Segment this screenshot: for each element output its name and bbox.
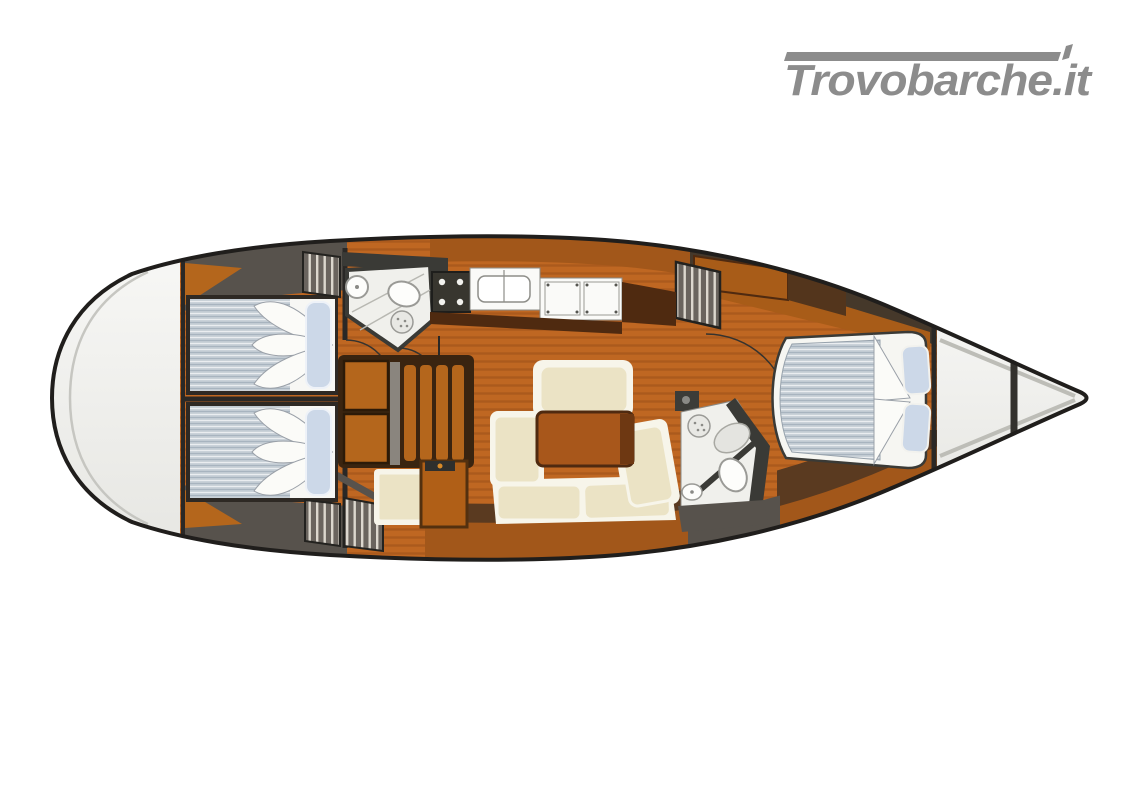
pillow [901, 403, 930, 453]
watermark-logo: Trovobarche.it [784, 44, 1094, 105]
boat-floorplan-image: Trovobarche.it [0, 0, 1132, 800]
galley-counter-lockers [540, 278, 622, 320]
forward-cabin [773, 326, 935, 470]
locker-hatched-galley [676, 262, 720, 328]
berth-mattress [780, 340, 880, 460]
aft-cabin-berth-top [186, 295, 338, 395]
locker-hatched-aft-bottom-1 [305, 500, 340, 546]
page: Trovobarche.it [0, 0, 1132, 800]
table-leaf [344, 414, 388, 463]
saloon-bench-back [540, 366, 628, 413]
logo-text: Trovobarche.it [784, 56, 1094, 105]
stove-icon [432, 272, 470, 312]
shower-drain-icon [688, 415, 710, 437]
saloon-bench-armrest [620, 414, 634, 464]
aft-cabin-berth-bottom [186, 402, 338, 502]
bow-deck [937, 290, 1107, 510]
sink-drain [355, 285, 359, 289]
pillow [901, 345, 930, 395]
settee-cushion-left [494, 416, 540, 483]
table-hinge [390, 362, 400, 465]
interior [52, 228, 1107, 572]
nav-cabinet-knob [438, 464, 443, 469]
locker-hatched-aft-top [303, 252, 340, 297]
nav-seat [378, 473, 422, 521]
settee-cushion-bottom-1 [497, 485, 581, 520]
shower-drain-icon [391, 311, 413, 333]
table-leaf [344, 361, 388, 410]
saloon-bench-seat [537, 412, 633, 466]
